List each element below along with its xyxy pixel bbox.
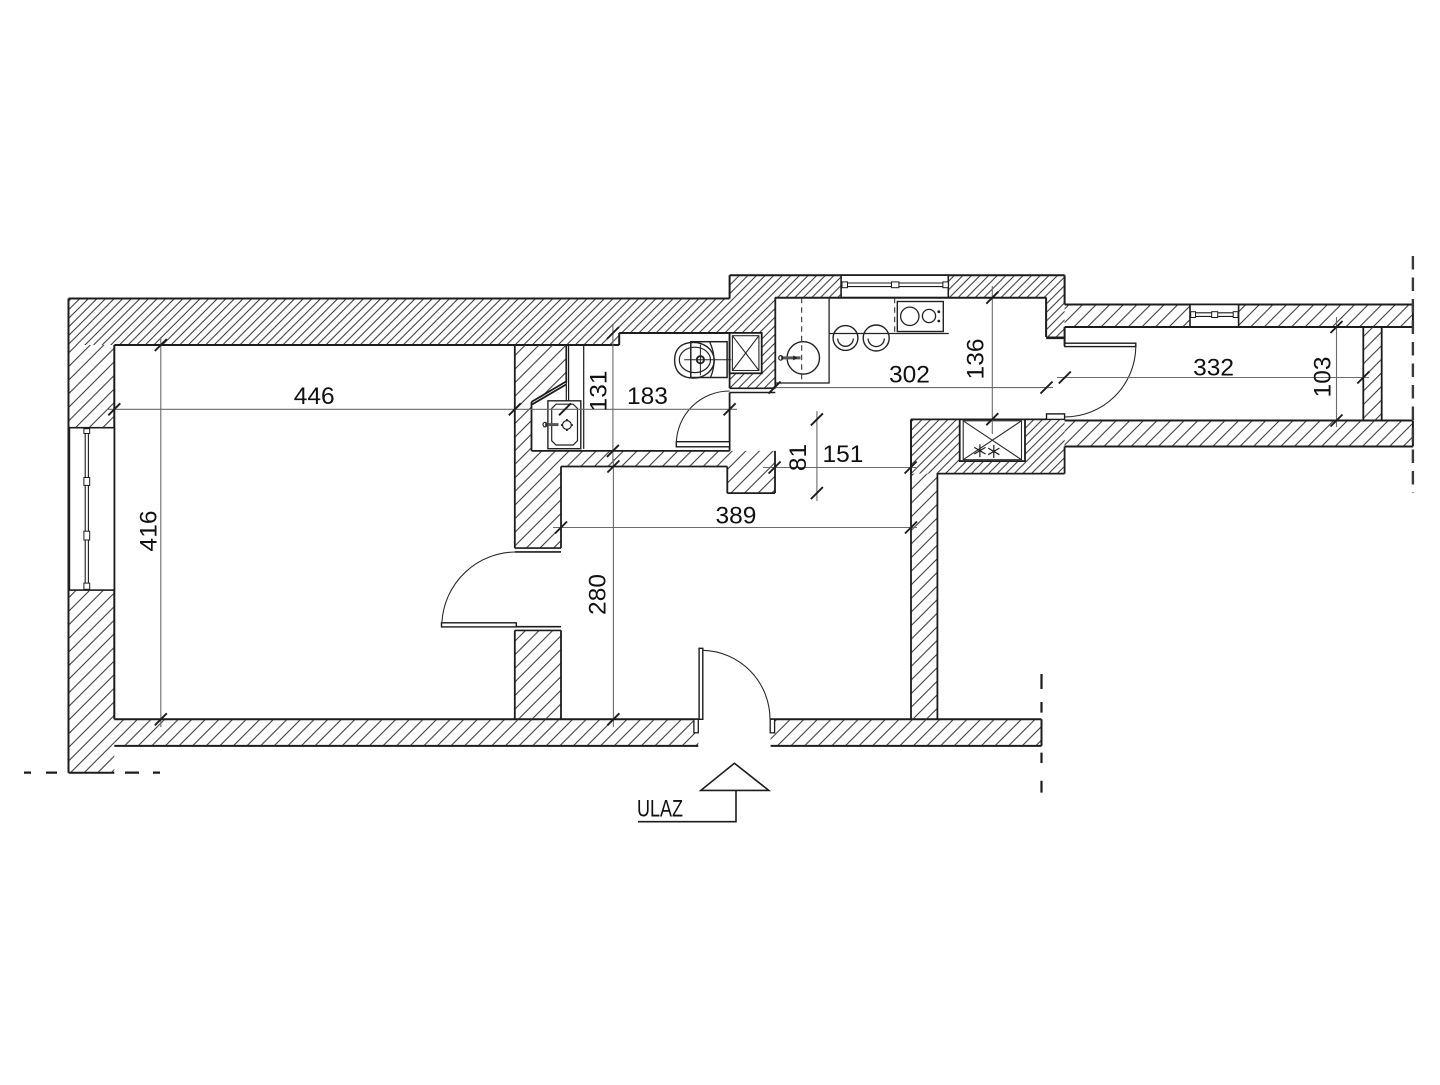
svg-text:446: 446 [294,383,335,410]
svg-text:416: 416 [136,511,163,552]
svg-text:151: 151 [823,441,864,468]
svg-text:280: 280 [585,574,612,615]
svg-text:302: 302 [889,361,930,388]
svg-text:ULAZ: ULAZ [637,796,683,823]
svg-text:81: 81 [785,444,812,471]
svg-text:136: 136 [963,339,990,380]
svg-text:389: 389 [716,503,757,530]
svg-text:103: 103 [1310,357,1337,398]
svg-text:131: 131 [586,371,613,412]
svg-text:183: 183 [627,383,668,410]
svg-text:332: 332 [1193,355,1234,382]
